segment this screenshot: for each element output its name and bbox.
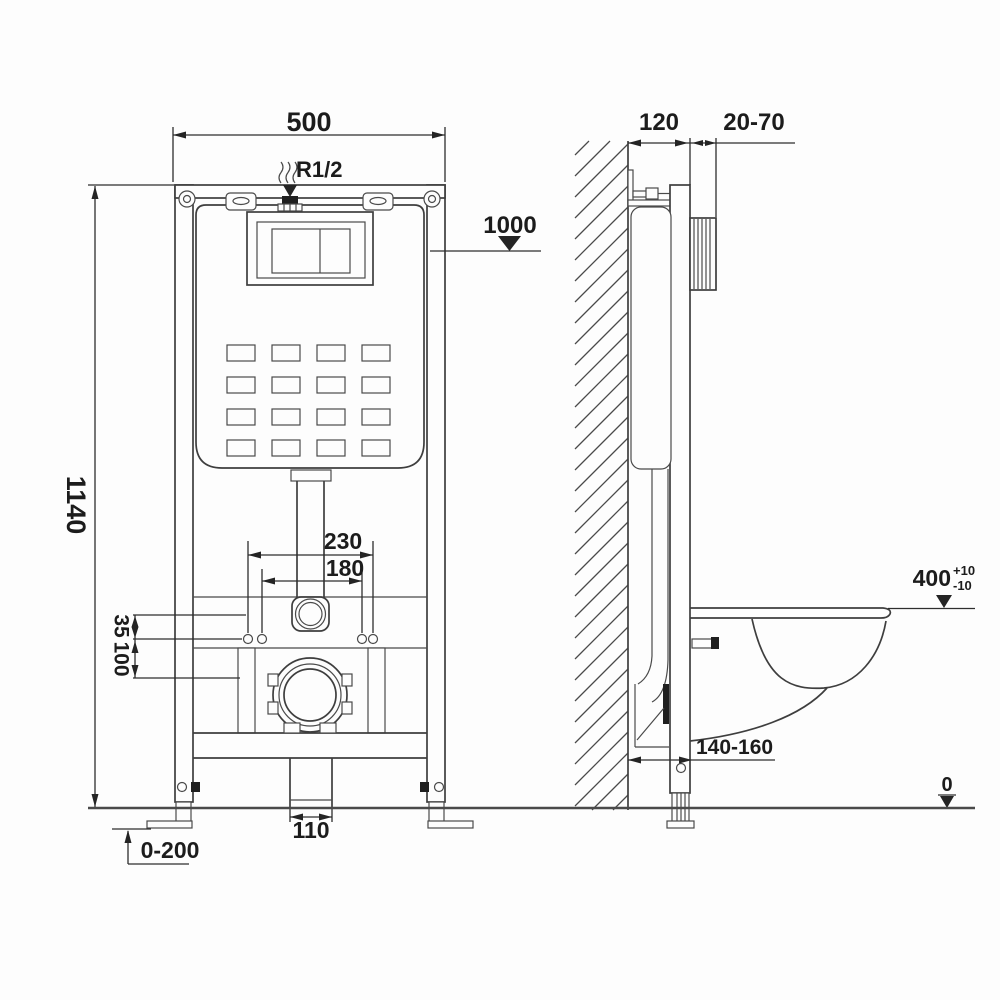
hatch-line (575, 312, 628, 365)
hatch-line (575, 333, 628, 386)
knockout (317, 377, 345, 393)
drain-stub-side (663, 684, 669, 724)
toilet-frame-installation-diagram: 500 R1/2 1000 1140 230 180 (0, 0, 1000, 1000)
mounting-stud (692, 639, 713, 648)
dim-fixing-230: 230 (324, 528, 362, 554)
hatch-line (575, 459, 628, 512)
dim-floor-zero: 0 (941, 774, 952, 796)
hatch-line (575, 669, 628, 722)
knockout (272, 377, 300, 393)
cistern-body (196, 205, 424, 468)
dim-seat-tol-minus: -10 (953, 578, 972, 593)
dim-seat-tol-plus: +10 (953, 563, 975, 578)
hatch-line (575, 522, 628, 575)
drain-foot-right (320, 723, 336, 733)
hatch-line (575, 732, 628, 785)
knockout (227, 440, 255, 456)
dim-wall-finish-range: 20-70 (723, 109, 784, 136)
knockout (227, 377, 255, 393)
level-marker-triangle (936, 595, 952, 608)
knockout (272, 345, 300, 361)
foot-plate-left (147, 821, 192, 828)
arrowhead (92, 794, 99, 807)
hatch-line (575, 501, 628, 554)
leg-right (429, 802, 444, 822)
hatch-line (575, 690, 628, 743)
hatch-line (575, 711, 628, 764)
hanger-tab-left (226, 193, 256, 210)
hatch-line (575, 144, 628, 197)
hatch-line (575, 396, 628, 449)
knockout (317, 440, 345, 456)
cistern (196, 193, 424, 468)
bowl-basin-curve (752, 619, 886, 688)
label-inlet-thread: R1/2 (296, 157, 342, 182)
hatch-line (575, 753, 628, 806)
hatch-line (575, 480, 628, 533)
dim-outlet-width-110: 110 (292, 817, 329, 843)
wall-bracket (628, 170, 672, 206)
hatch-line (575, 606, 628, 659)
hatch-line (575, 417, 628, 470)
arrowhead (628, 757, 641, 764)
hatch-line (592, 774, 628, 810)
arrowhead (173, 132, 186, 139)
hatch-line (575, 228, 628, 281)
knockout (362, 440, 390, 456)
leg-lock-hole-left (178, 783, 187, 792)
hatch-line (575, 543, 628, 596)
knockout (362, 409, 390, 425)
arrowhead (262, 578, 275, 585)
arrowhead (705, 140, 716, 146)
dim-frame-width: 500 (286, 107, 331, 137)
hatch-line (575, 564, 628, 617)
corner-screw-right (424, 191, 440, 207)
arrowhead (675, 140, 688, 147)
leg-lock-hole-right (435, 783, 444, 792)
knockout (317, 409, 345, 425)
flush-plate-housing (690, 218, 716, 290)
front-dimensions: 500 R1/2 1000 1140 230 180 (61, 107, 541, 864)
arrowhead (125, 830, 132, 843)
flush-plate-inner (257, 222, 365, 278)
knockout (362, 345, 390, 361)
dim-drain-distance: 140-160 (696, 736, 773, 759)
dim-fixing-180: 180 (326, 555, 364, 581)
flush-plate (247, 212, 373, 285)
dim-leg-adjust: 0-200 (141, 837, 200, 863)
leg-left (176, 802, 191, 822)
hanger-tab-right (363, 193, 393, 210)
cistern-side-profile (631, 207, 671, 469)
support-post-right (368, 648, 385, 733)
drain-clip-right-top (342, 674, 352, 686)
trap-diagonal (637, 708, 664, 740)
level-marker-1000: 1000 (483, 212, 536, 239)
technical-drawing-canvas: 500 R1/2 1000 1140 230 180 (0, 0, 1000, 1000)
leg-lock-pin-right (420, 782, 429, 792)
frame-left-rail (175, 185, 193, 802)
toilet-bowl-profile (690, 608, 890, 741)
side-view: 120 20-70 400 +10 -10 140-160 0 (575, 109, 975, 828)
bracket-arm (628, 200, 672, 206)
level-marker-triangle (940, 796, 954, 808)
hatch-line (575, 141, 610, 176)
water-squiggle-2 (286, 162, 290, 183)
knockout (272, 440, 300, 456)
hatch-line (575, 438, 628, 491)
frame-right-rail (427, 185, 445, 802)
dim-offset-100: 100 (109, 641, 132, 676)
knockout-grid (227, 345, 390, 456)
arrowhead (432, 132, 445, 139)
corner-screw-left (179, 191, 195, 207)
hatch-line (575, 648, 628, 701)
foot-plate-right (428, 821, 473, 828)
hatch-line (575, 585, 628, 638)
inlet-nipple (282, 196, 298, 204)
fixing-holes (244, 635, 378, 644)
dim-offset-35: 35 (109, 614, 132, 638)
hatch-line (575, 165, 628, 218)
knockout (227, 345, 255, 361)
mounting-stud-tip (711, 637, 719, 649)
bolt-hole (358, 635, 367, 644)
drain-clip-left-bottom (268, 702, 278, 714)
hatch-line (575, 141, 589, 155)
flush-pipe-flange (291, 470, 331, 481)
dim-overall-height: 1140 (61, 476, 91, 535)
bracket-plate (628, 170, 633, 204)
elbow-outer (638, 656, 652, 684)
frame-top-rail (175, 185, 445, 198)
drain-clip-right-bottom (342, 702, 352, 714)
drain-clip-left-top (268, 674, 278, 686)
wall-hatch (575, 141, 628, 810)
arrowhead (92, 186, 99, 199)
leg-lock-pin-left (191, 782, 200, 792)
knockout (362, 377, 390, 393)
bolt-hole (244, 635, 253, 644)
arrowhead (248, 552, 261, 559)
leg-lock-hole-side (677, 764, 686, 773)
arrowhead (692, 140, 703, 146)
knockout (227, 409, 255, 425)
hatch-line (575, 354, 628, 407)
front-view: 500 R1/2 1000 1140 230 180 (61, 107, 541, 864)
bolt-hole (258, 635, 267, 644)
drain-foot-left (284, 723, 300, 733)
flush-plate-frame (247, 212, 373, 285)
knockout (317, 345, 345, 361)
water-squiggle-1 (279, 162, 283, 183)
hatch-line (575, 207, 628, 260)
seat-rim (690, 608, 890, 618)
knockout (272, 409, 300, 425)
bracket-rod (633, 191, 647, 197)
bowl-underside-curve (690, 688, 827, 741)
flush-buttons (272, 229, 350, 273)
support-post-left (238, 648, 255, 733)
arrowhead (628, 140, 641, 147)
hatch-line (575, 375, 628, 428)
bracket-nut (646, 188, 658, 199)
rail-profile (670, 185, 690, 793)
hatch-line (575, 291, 628, 344)
hatch-line (575, 186, 628, 239)
hatch-line (575, 627, 628, 680)
bolt-hole (369, 635, 378, 644)
dim-frame-depth-120: 120 (639, 109, 679, 136)
foot-plate-side (667, 821, 694, 828)
hatch-line (575, 270, 628, 323)
plumbing-side (635, 469, 669, 747)
dim-seat-height-400: 400 (913, 565, 951, 591)
hatch-line (575, 249, 628, 302)
